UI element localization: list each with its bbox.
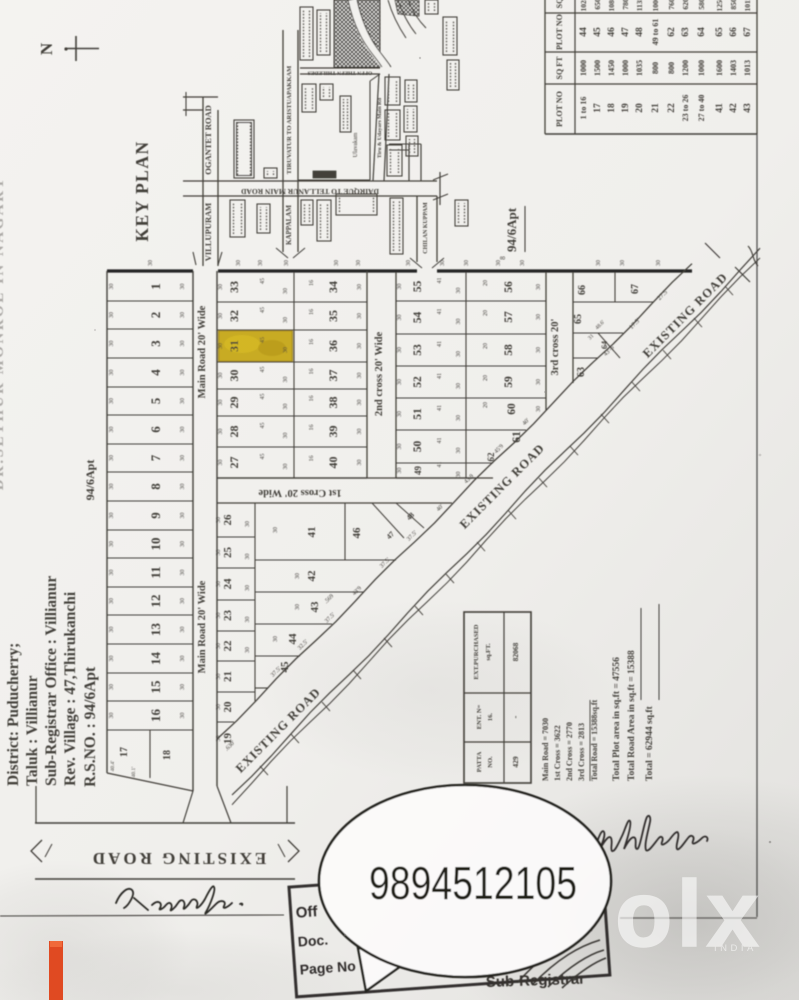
svg-text:32: 32 [227, 310, 241, 322]
svg-text:Rev. Village : 47,Thirukanchi: Rev. Village : 47,Thirukanchi [62, 591, 79, 786]
svg-text:30: 30 [596, 260, 602, 266]
svg-text:94/6Apt: 94/6Apt [504, 207, 519, 252]
svg-text:DAIRQUE TO TELLANUR MAIN ROAD: DAIRQUE TO TELLANUR MAIN ROAD [240, 187, 379, 196]
svg-text:KAPPALAM: KAPPALAM [285, 205, 293, 245]
svg-text:Main Road 20' Wide: Main Road 20' Wide [197, 305, 208, 398]
svg-text:30: 30 [536, 347, 542, 353]
svg-text:30: 30 [109, 312, 115, 318]
svg-text:30: 30 [216, 704, 222, 710]
svg-text:30: 30 [520, 260, 526, 266]
svg-text:30: 30 [456, 448, 462, 454]
svg-text:EXISTING ROAD: EXISTING ROAD [90, 849, 266, 868]
svg-text:30: 30 [245, 617, 251, 623]
svg-text:30: 30 [357, 343, 363, 349]
svg-text:30: 30 [357, 400, 363, 406]
svg-text:30: 30 [357, 429, 363, 435]
svg-text:9894512105: 9894512105 [369, 857, 577, 909]
svg-text:40.4': 40.4' [110, 761, 116, 772]
svg-text:40: 40 [326, 457, 340, 469]
svg-text:18: 18 [607, 103, 617, 113]
svg-text:NO.: NO. [487, 756, 494, 768]
svg-text:1080: 1080 [607, 0, 616, 12]
svg-text:30: 30 [216, 674, 222, 680]
svg-text:51: 51 [412, 408, 424, 420]
svg-text:30: 30 [536, 284, 542, 290]
svg-text:650: 650 [593, 0, 602, 10]
svg-text:30: 30 [464, 260, 470, 266]
svg-text:sq.FT.: sq.FT. [485, 643, 492, 661]
svg-text:ENT. N=: ENT. N= [476, 704, 483, 729]
svg-text:1135: 1135 [635, 0, 644, 11]
svg-text:29: 29 [227, 397, 241, 409]
svg-text:27 to 40: 27 to 40 [697, 95, 706, 122]
svg-text:41: 41 [437, 341, 443, 347]
svg-text:30: 30 [109, 455, 115, 461]
svg-text:620: 620 [681, 0, 690, 10]
svg-text:21: 21 [651, 103, 661, 113]
svg-text:PLOT NO: PLOT NO [555, 14, 564, 50]
svg-text:24: 24 [222, 578, 234, 590]
svg-text:30: 30 [180, 341, 186, 347]
svg-text:1st Cross = 3622: 1st Cross = 3622 [553, 725, 562, 781]
svg-text:1450: 1450 [607, 60, 616, 76]
svg-text:2nd cross 20' Wide: 2nd cross 20' Wide [374, 332, 385, 417]
svg-text:45: 45 [593, 27, 603, 37]
svg-text:10: 10 [148, 538, 163, 551]
svg-text:30: 30 [456, 383, 462, 389]
svg-text:1000: 1000 [697, 60, 706, 76]
svg-text:580: 580 [697, 0, 706, 10]
svg-text:30: 30 [456, 351, 462, 357]
svg-text:30: 30 [357, 373, 363, 379]
svg-text:49: 49 [413, 466, 423, 476]
svg-text:1013: 1013 [743, 60, 752, 76]
svg-text:1035: 1035 [635, 60, 644, 76]
svg-text:30: 30 [456, 288, 462, 294]
svg-text:30: 30 [334, 260, 340, 266]
svg-text:16: 16 [309, 396, 315, 402]
svg-text:30: 30 [456, 319, 462, 325]
svg-text:30: 30 [357, 460, 363, 466]
svg-text:30: 30 [397, 379, 403, 385]
svg-text:-: - [511, 715, 520, 718]
svg-text:36: 36 [326, 340, 340, 352]
svg-text:17: 17 [593, 103, 603, 113]
svg-text:30: 30 [180, 541, 186, 547]
svg-text:N: N [37, 42, 56, 55]
svg-text:30: 30 [109, 684, 115, 690]
svg-text:60: 60 [506, 403, 518, 415]
svg-text:23 to 26: 23 to 26 [681, 95, 690, 122]
svg-text:65: 65 [573, 314, 584, 324]
svg-text:760: 760 [667, 0, 676, 10]
svg-text:47: 47 [621, 27, 631, 37]
svg-text:54: 54 [412, 312, 424, 324]
svg-text:16: 16 [309, 369, 315, 375]
svg-text:45: 45 [260, 278, 266, 284]
svg-text:46: 46 [351, 527, 363, 539]
svg-text:30: 30 [109, 370, 115, 376]
svg-text:44: 44 [579, 27, 589, 37]
svg-text:63: 63 [681, 27, 691, 37]
svg-text:30: 30 [180, 484, 186, 490]
svg-text:37: 37 [326, 370, 340, 382]
svg-text:30: 30 [180, 312, 186, 318]
svg-text:30: 30 [440, 260, 446, 266]
svg-text:30: 30 [109, 427, 115, 433]
svg-text:30: 30 [180, 570, 186, 576]
svg-text:30: 30 [109, 656, 115, 662]
svg-text:30: 30 [109, 627, 115, 633]
svg-text:22: 22 [222, 640, 234, 652]
svg-text:16: 16 [309, 280, 315, 286]
svg-text:Off: Off [295, 903, 319, 922]
svg-text:30: 30 [180, 370, 186, 376]
svg-text:61: 61 [511, 431, 523, 443]
svg-text:Total = 629: Total = 62944 sq.ft [645, 705, 655, 781]
svg-text:16: 16 [309, 456, 315, 462]
svg-text:30: 30 [227, 370, 241, 382]
svg-text:30: 30 [109, 598, 115, 604]
svg-text:30: 30 [216, 581, 222, 587]
svg-text:30: 30 [218, 313, 224, 319]
svg-text:41: 41 [437, 309, 443, 315]
svg-text:1200: 1200 [681, 60, 690, 76]
svg-text:30: 30 [397, 411, 403, 417]
svg-text:8: 8 [148, 483, 163, 490]
svg-text:39: 39 [326, 426, 340, 438]
svg-text:12: 12 [148, 595, 163, 608]
svg-text:30: 30 [218, 343, 224, 349]
svg-text:30: 30 [180, 455, 186, 461]
svg-text:16: 16 [309, 309, 315, 315]
svg-text:41: 41 [437, 438, 443, 444]
svg-text:45: 45 [260, 367, 266, 373]
svg-text:33: 33 [227, 281, 241, 293]
svg-text:1500: 1500 [593, 60, 602, 76]
svg-text:30: 30 [536, 314, 542, 320]
svg-text:30: 30 [397, 444, 403, 450]
svg-text:429: 429 [511, 756, 520, 768]
svg-text:59: 59 [503, 376, 515, 388]
svg-text:30: 30 [656, 260, 662, 266]
svg-text:17: 17 [119, 747, 130, 757]
svg-text:800: 800 [667, 62, 676, 74]
svg-text:30: 30 [109, 513, 115, 519]
svg-text:43: 43 [309, 601, 321, 613]
svg-text:PLOT NO: PLOT NO [555, 91, 564, 127]
svg-text:20: 20 [635, 103, 645, 113]
svg-text:30: 30 [180, 427, 186, 433]
svg-text:41: 41 [715, 103, 725, 113]
svg-text:20: 20 [483, 375, 489, 381]
svg-text:41: 41 [437, 462, 443, 468]
svg-text:44: 44 [287, 633, 299, 645]
svg-text:19: 19 [621, 103, 631, 113]
svg-text:3: 3 [148, 340, 163, 347]
svg-text:30: 30 [536, 406, 542, 412]
svg-text:8: 8 [499, 256, 507, 260]
svg-text:3rd Cross = 2813: 3rd Cross = 2813 [577, 723, 586, 781]
svg-text:KEY PLAN: KEY PLAN [132, 140, 152, 241]
svg-text:30: 30 [218, 373, 224, 379]
svg-text:30: 30 [180, 627, 186, 633]
svg-text:22: 22 [667, 103, 677, 113]
svg-text:16: 16 [309, 425, 315, 431]
svg-text:94/6Apt: 94/6Apt [83, 460, 97, 501]
svg-text:66: 66 [577, 285, 588, 295]
svg-text:45: 45 [260, 337, 266, 343]
svg-text:1600: 1600 [715, 60, 724, 76]
svg-text:67: 67 [743, 27, 753, 37]
svg-text:Doc.: Doc. [297, 932, 328, 950]
svg-text:26: 26 [222, 514, 234, 526]
svg-text:850: 850 [729, 0, 738, 10]
svg-text:Total Road Area in sq.ft =: Total Road Area in sq.ft = 15388 [627, 650, 637, 781]
svg-text:30: 30 [109, 398, 115, 404]
svg-text:15: 15 [148, 680, 163, 694]
svg-text:55: 55 [412, 281, 424, 293]
svg-text:TIRUVATUR TO ARISTUAPAKKAM: TIRUVATUR TO ARISTUAPAKKAM [286, 66, 293, 174]
svg-text:Main Road 20' Wide: Main Road 20' Wide [197, 580, 208, 673]
svg-text:30: 30 [406, 260, 412, 266]
svg-text:42: 42 [729, 103, 739, 113]
svg-text:30: 30 [180, 598, 186, 604]
svg-text:30: 30 [397, 284, 403, 290]
svg-text:23: 23 [222, 610, 234, 622]
svg-text:62: 62 [667, 27, 677, 37]
svg-text:1015: 1015 [743, 0, 752, 12]
svg-text:780: 780 [621, 0, 630, 10]
svg-text:1024: 1024 [579, 0, 588, 12]
svg-text:30: 30 [283, 464, 289, 470]
svg-text:11: 11 [148, 566, 163, 578]
svg-text:65: 65 [715, 27, 725, 37]
svg-text:1000: 1000 [651, 0, 660, 12]
svg-text:1st Cross 20' Wide: 1st Cross 20' Wide [258, 487, 341, 498]
svg-text:2: 2 [148, 312, 163, 319]
svg-text:30: 30 [236, 260, 242, 266]
svg-text:30: 30 [180, 684, 186, 690]
svg-text:30: 30 [109, 713, 115, 719]
svg-text:16.: 16. [487, 713, 494, 722]
svg-text:45: 45 [260, 394, 266, 400]
svg-text:30: 30 [295, 604, 301, 610]
svg-text:30: 30 [218, 284, 224, 290]
svg-text:30: 30 [109, 541, 115, 547]
svg-text:20: 20 [483, 280, 489, 286]
svg-text:41: 41 [437, 373, 443, 379]
svg-text:28: 28 [227, 426, 241, 438]
svg-text:30: 30 [357, 313, 363, 319]
svg-text:40.1': 40.1' [131, 767, 137, 778]
svg-text:EXT.PURCHASED: EXT.PURCHASED [473, 624, 480, 679]
svg-text:43: 43 [743, 103, 753, 113]
svg-text:49 to 61: 49 to 61 [651, 19, 660, 46]
svg-text:67: 67 [630, 284, 641, 294]
svg-text:30: 30 [496, 260, 502, 266]
svg-text:30: 30 [148, 260, 154, 266]
svg-text:41: 41 [437, 278, 443, 284]
svg-text:Ulavakam: Ulavakam [353, 132, 359, 157]
svg-text:52: 52 [412, 376, 424, 388]
svg-text:16: 16 [309, 339, 315, 345]
svg-text:30: 30 [283, 404, 289, 410]
svg-text:30: 30 [109, 341, 115, 347]
svg-text:30: 30 [216, 517, 222, 523]
svg-text:30: 30 [180, 656, 186, 662]
svg-text:16: 16 [148, 709, 163, 723]
svg-text:35: 35 [326, 310, 340, 322]
svg-text:30: 30 [536, 379, 542, 385]
svg-text:6: 6 [148, 426, 163, 433]
svg-text:District: Puducherry;: District: Puducherry; [5, 643, 22, 786]
svg-text:25: 25 [222, 547, 234, 559]
svg-text:30: 30 [283, 288, 289, 294]
svg-text:R.S.NO. : 94/6Apt: R.S.NO. : 94/6Apt [82, 666, 99, 787]
svg-text:SQ FT: SQ FT [555, 56, 564, 80]
svg-text:41: 41 [306, 527, 318, 538]
svg-text:800: 800 [651, 62, 660, 74]
svg-text:57: 57 [503, 311, 515, 323]
svg-text:SQ: SQ [555, 0, 564, 8]
svg-text:4: 4 [148, 369, 163, 376]
svg-text:1: 1 [148, 283, 163, 290]
svg-text:45: 45 [260, 454, 266, 460]
svg-text:30: 30 [283, 347, 289, 353]
svg-text:46: 46 [607, 27, 617, 37]
svg-text:42: 42 [306, 570, 318, 582]
svg-text:30: 30 [245, 647, 251, 653]
svg-text:82068: 82068 [511, 642, 520, 661]
svg-text:21: 21 [222, 671, 234, 682]
svg-text:14: 14 [148, 652, 163, 666]
svg-text:30: 30 [109, 570, 115, 576]
svg-text:Total Road = 15388sq.ft: Total Road = 15388sq.ft [590, 700, 599, 782]
svg-text:CHILAN KUPPAM: CHILAN KUPPAM [423, 202, 429, 254]
svg-text:30: 30 [180, 284, 186, 290]
svg-text:20: 20 [483, 310, 489, 316]
svg-text:30: 30 [273, 636, 279, 642]
svg-text:PATTA: PATTA [476, 751, 483, 772]
svg-text:9: 9 [148, 512, 163, 519]
svg-text:30: 30 [397, 315, 403, 321]
svg-text:Taluk : Villianur: Taluk : Villianur [24, 675, 41, 786]
svg-text:58: 58 [503, 344, 515, 356]
svg-text:30: 30 [397, 468, 403, 474]
svg-text:30: 30 [109, 284, 115, 290]
svg-text:45: 45 [260, 423, 266, 429]
svg-text:30: 30 [295, 573, 301, 579]
svg-text:5: 5 [148, 397, 163, 404]
svg-text:41: 41 [437, 405, 443, 411]
svg-text:30: 30 [273, 527, 279, 533]
svg-text:20: 20 [222, 701, 234, 713]
svg-text:VILLUPURAM: VILLUPURAM [203, 203, 213, 262]
svg-text:Total Plot area in sq.ft: Total Plot area in sq.ft = 47556 [612, 657, 622, 781]
svg-text:30: 30 [357, 284, 363, 290]
svg-text:63: 63 [576, 367, 587, 377]
svg-text:30: 30 [245, 585, 251, 591]
svg-text:DR.SETHUR MONROE IN NAGARY: DR.SETHUR MONROE IN NAGARY [0, 176, 7, 491]
svg-text:38: 38 [326, 397, 340, 409]
svg-text:1 to 16: 1 to 16 [579, 97, 588, 120]
svg-text:66: 66 [729, 27, 739, 37]
svg-text:Main Road = 7030: Main Road = 7030 [541, 718, 550, 781]
svg-text:30: 30 [356, 260, 362, 266]
svg-text:30: 30 [180, 713, 186, 719]
svg-text:30: 30 [216, 643, 222, 649]
svg-text:30: 30 [218, 429, 224, 435]
svg-text:30: 30 [283, 317, 289, 323]
svg-text:30: 30 [245, 554, 251, 560]
svg-text:56: 56 [503, 281, 515, 293]
svg-text:30: 30 [284, 260, 290, 266]
svg-text:50: 50 [412, 441, 424, 453]
svg-text:30: 30 [216, 613, 222, 619]
svg-text:30: 30 [258, 260, 264, 266]
svg-text:INDIA: INDIA [714, 943, 757, 954]
svg-text:45: 45 [260, 307, 266, 313]
svg-text:20: 20 [483, 402, 489, 408]
svg-text:34: 34 [326, 281, 340, 293]
svg-text:Tiru & Udayars Main Rd: Tiru & Udayars Main Rd [377, 98, 383, 158]
svg-text:18: 18 [162, 750, 173, 760]
svg-text:7: 7 [148, 454, 163, 461]
svg-text:3rd cross 20': 3rd cross 20' [550, 318, 561, 375]
svg-text:OPPN THEPN THILEDES: OPPN THEPN THILEDES [308, 70, 373, 76]
svg-text:1403: 1403 [729, 60, 738, 76]
svg-text:1250: 1250 [715, 0, 724, 12]
svg-text:30: 30 [283, 377, 289, 383]
svg-text:30: 30 [456, 415, 462, 421]
svg-text:OGANTET ROAD: OGANTET ROAD [203, 105, 213, 175]
svg-text:30: 30 [218, 460, 224, 466]
svg-text:30: 30 [109, 484, 115, 490]
svg-text:31: 31 [227, 340, 241, 352]
svg-text:30: 30 [283, 433, 289, 439]
svg-text:30: 30 [456, 472, 462, 478]
svg-text:13: 13 [148, 623, 163, 637]
svg-text:30: 30 [216, 550, 222, 556]
svg-text:30: 30 [180, 398, 186, 404]
svg-text:20: 20 [483, 343, 489, 349]
svg-text:48: 48 [635, 27, 645, 37]
svg-text:30: 30 [245, 521, 251, 527]
svg-text:30: 30 [397, 347, 403, 353]
svg-text:27: 27 [227, 457, 241, 469]
svg-text:1000: 1000 [579, 60, 588, 76]
svg-text:30: 30 [620, 260, 626, 266]
svg-text:30: 30 [180, 513, 186, 519]
svg-text:53: 53 [412, 344, 424, 356]
svg-text:2nd Cross = 2770: 2nd Cross = 2770 [565, 722, 574, 781]
svg-text:64: 64 [697, 27, 707, 37]
svg-text:30: 30 [218, 400, 224, 406]
svg-text:1000: 1000 [621, 60, 630, 76]
svg-text:Sub-Registrar Office : Villian: Sub-Registrar Office : Villianur [43, 576, 60, 786]
